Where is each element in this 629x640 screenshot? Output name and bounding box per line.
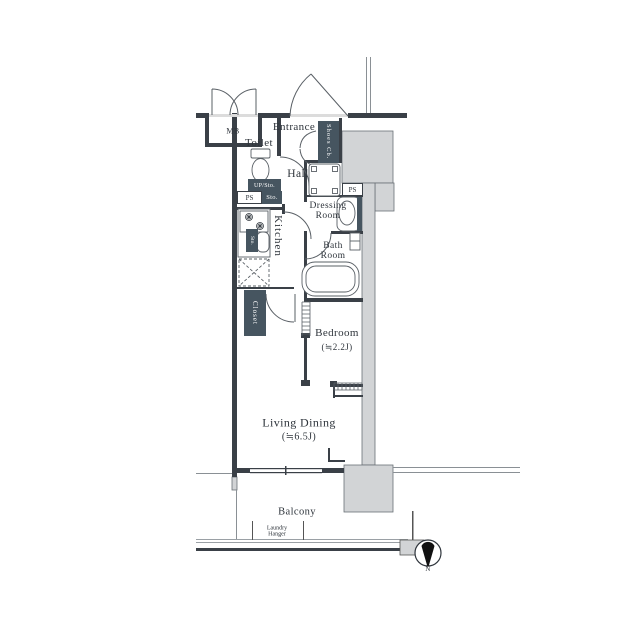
living-dining-size: (≒6.5J) xyxy=(282,433,316,444)
mb-opening xyxy=(209,114,258,117)
bath-counter xyxy=(350,233,360,250)
dressing-room-label-line2: Room xyxy=(310,211,347,221)
bedroom-door xyxy=(266,294,295,322)
balcony-rail-heavy xyxy=(196,548,408,551)
site-lines xyxy=(196,57,520,474)
washer-pan xyxy=(309,164,340,196)
balcony-divider xyxy=(236,490,237,540)
refrigerator-space xyxy=(239,259,269,286)
entrance-label: Entrance xyxy=(273,122,315,134)
dressing-room-label-line1: Dressing xyxy=(310,201,347,211)
bedroom-size: (≒2.2J) xyxy=(321,343,352,353)
right-wall-strip xyxy=(362,183,375,465)
entrance-opening xyxy=(290,114,348,117)
column-top-right xyxy=(342,131,393,183)
entrance-door xyxy=(290,74,348,116)
bathtub-inner xyxy=(306,266,355,292)
hall-label: Hall xyxy=(287,168,308,180)
balcony-rail-thin-2 xyxy=(196,542,408,543)
toilet-label: Toilet xyxy=(245,138,273,150)
laundry-pole-tick-1 xyxy=(252,521,253,540)
floor-plan: MB Entrance Toilet Hall Shoes Cb. UP/Sto… xyxy=(0,0,629,640)
hall-storage-badge: Sto. xyxy=(262,191,282,204)
shoes-cabinet-badge: Shoes Cb. xyxy=(318,121,339,163)
mb-door-right xyxy=(230,89,256,115)
balcony-label: Balcony xyxy=(278,506,316,517)
kitchen-label: Kitchen xyxy=(271,215,283,257)
column-stub xyxy=(375,183,394,211)
pipe-space-right-box: PS xyxy=(342,183,363,196)
column-bottom-right xyxy=(344,465,393,512)
pipe-space-left-box: PS xyxy=(237,191,262,204)
bedroom-label: Bedroom xyxy=(315,328,359,340)
dressing-room-label: Dressing Room xyxy=(310,201,347,222)
left-wall-stub xyxy=(232,477,237,490)
compass-north-label: N xyxy=(425,566,430,574)
balcony-window xyxy=(250,466,322,475)
laundry-hanger-label: Laundry Hanger xyxy=(267,526,287,539)
floor-plan-linework xyxy=(0,0,629,640)
compass xyxy=(415,540,441,567)
drain-pipe xyxy=(412,511,414,541)
kitchen-storage-badge: Sto. xyxy=(246,229,258,252)
balcony-rail-thin-1 xyxy=(196,539,408,540)
laundry-hanger-line2: Hanger xyxy=(267,532,287,538)
kitchen-sink xyxy=(257,232,269,252)
meter-box-label: MB xyxy=(226,128,239,137)
bath-room-label: Bath Room xyxy=(321,241,346,262)
living-dining-label: Living Dining xyxy=(262,417,336,430)
closet-badge: Closet xyxy=(244,290,266,336)
toilet-tank xyxy=(251,149,270,158)
bath-room-label-line2: Room xyxy=(321,251,346,261)
bath-room-label-line1: Bath xyxy=(321,241,346,251)
mb-door-left xyxy=(212,89,238,115)
laundry-pole-tick-2 xyxy=(303,521,304,540)
